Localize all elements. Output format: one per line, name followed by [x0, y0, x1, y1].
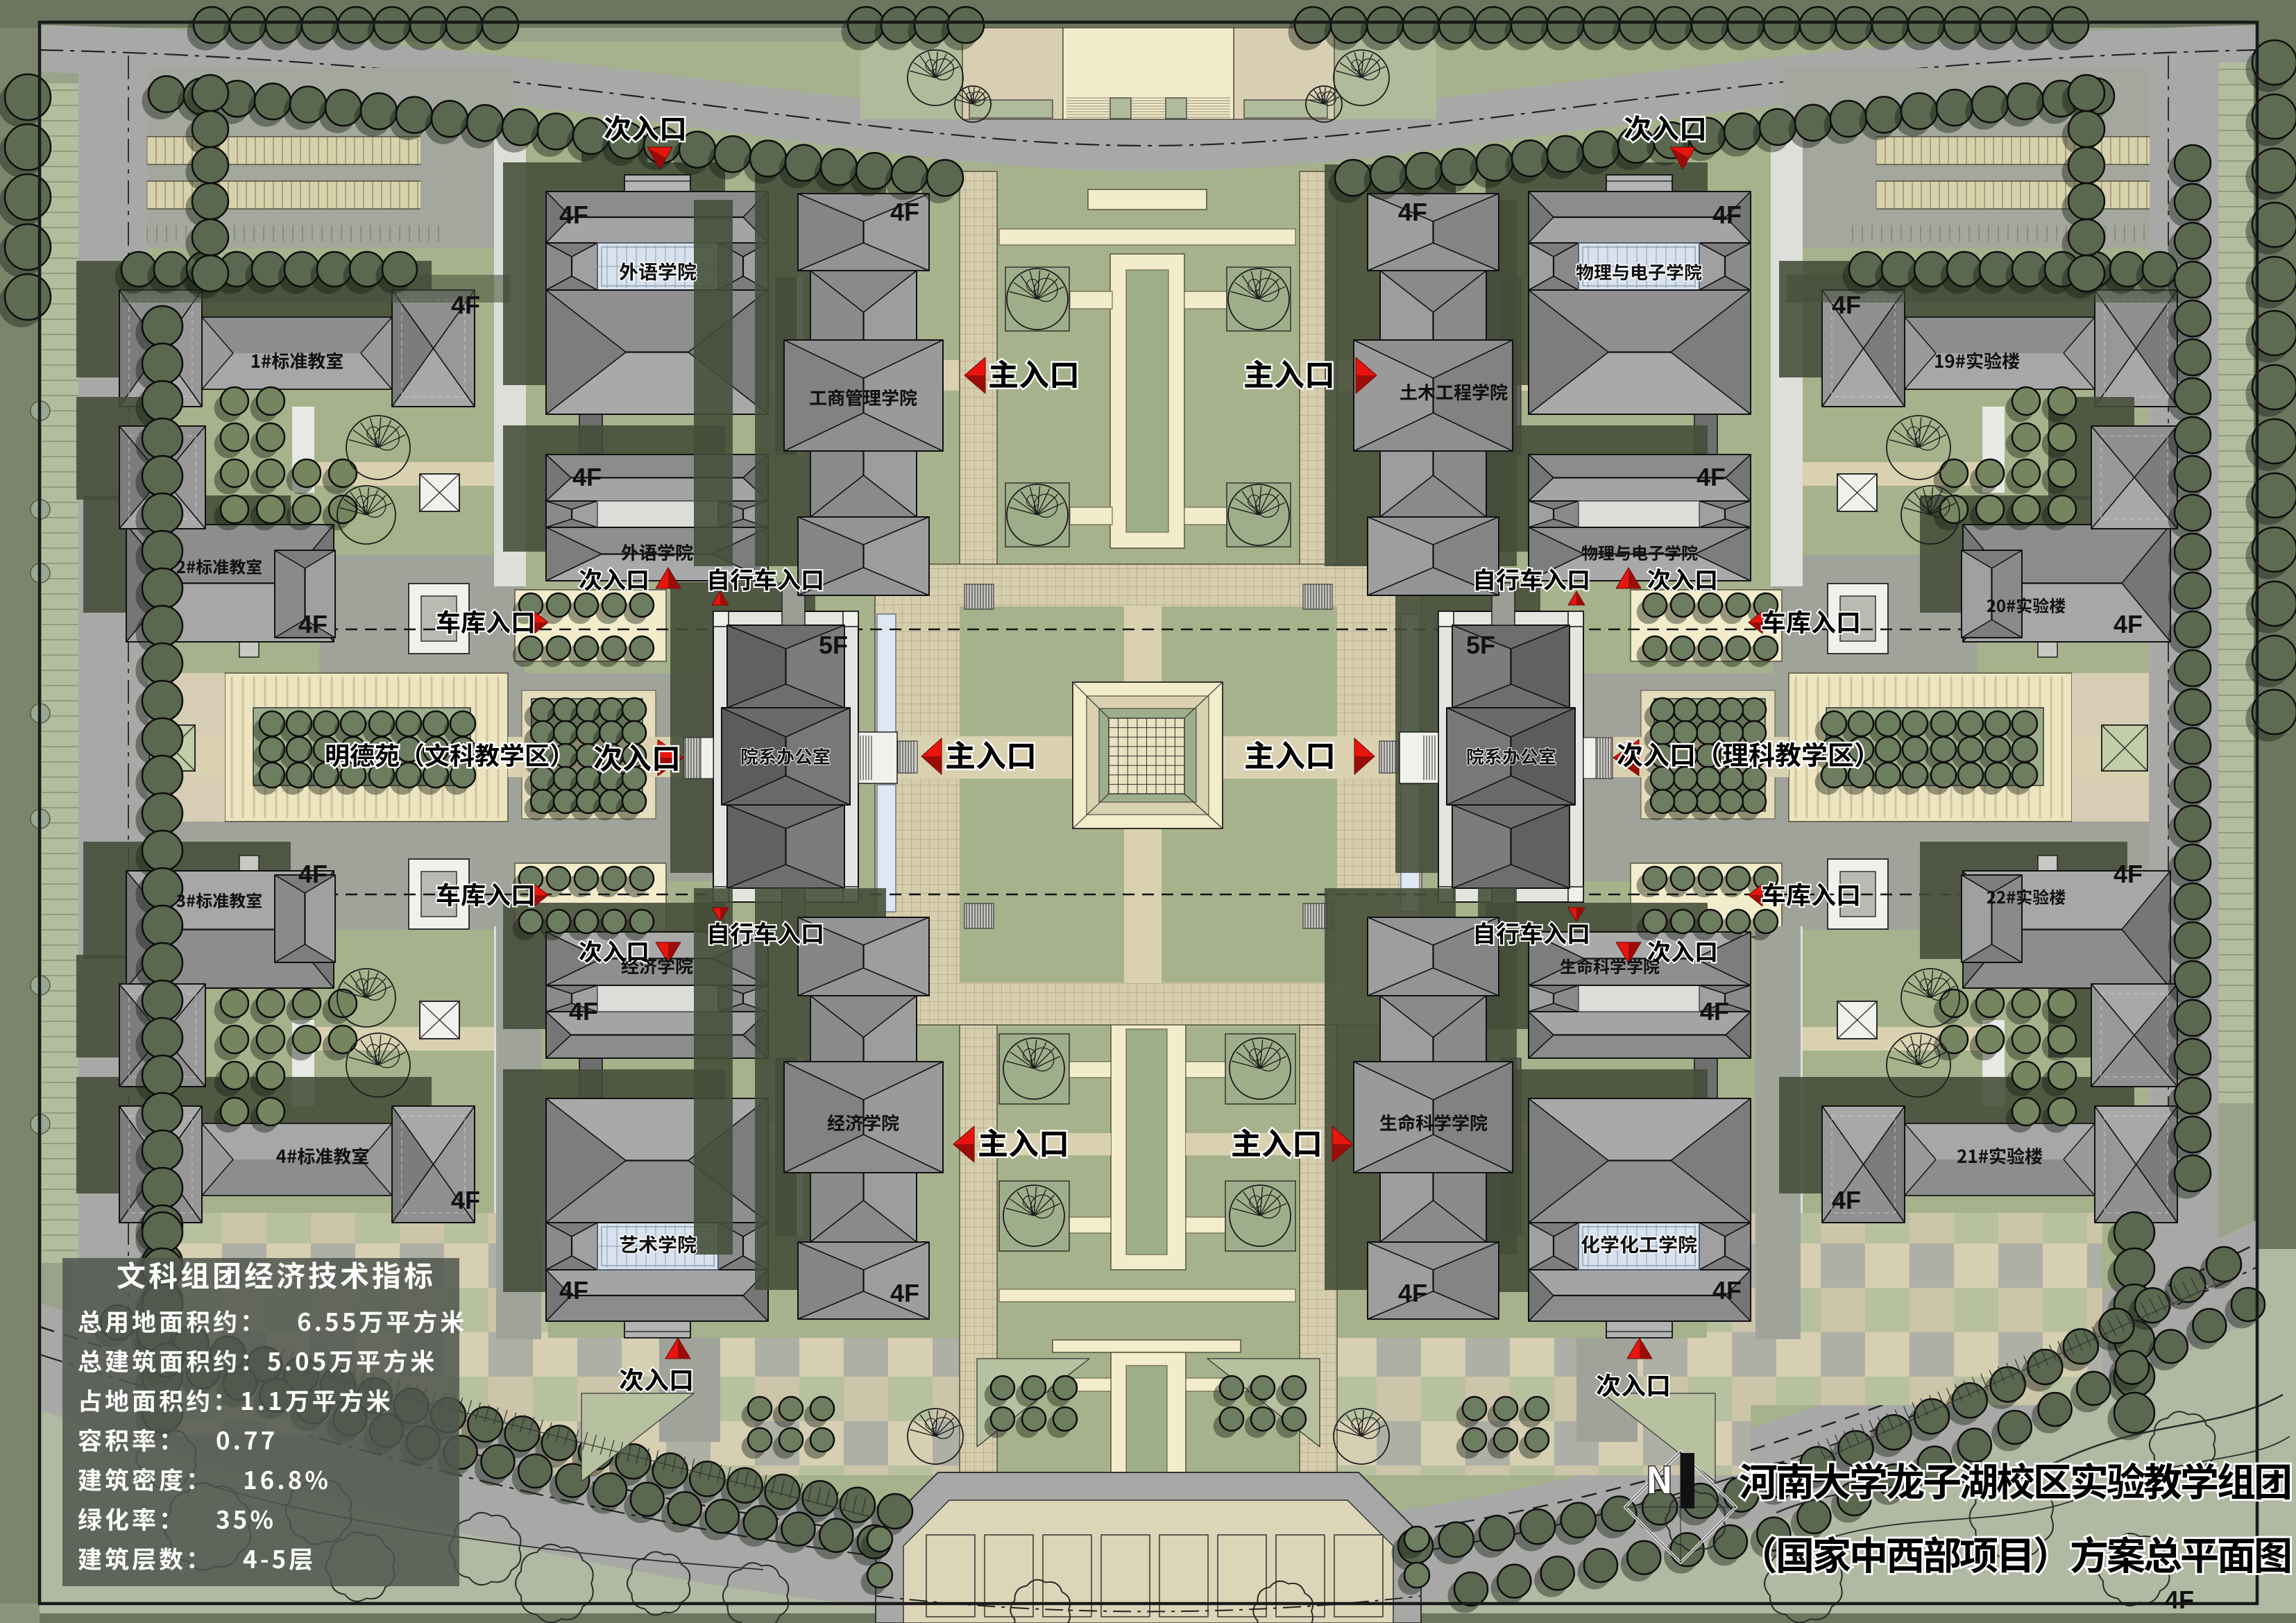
svg-text:4F: 4F: [1697, 463, 1726, 491]
svg-text:4F: 4F: [569, 997, 598, 1026]
svg-text:5F: 5F: [819, 631, 848, 659]
svg-text:4F: 4F: [1712, 1276, 1742, 1305]
svg-text:4F: 4F: [890, 198, 919, 226]
svg-text:4F: 4F: [2165, 1586, 2194, 1614]
svg-text:4F: 4F: [1398, 1279, 1427, 1307]
svg-text:4F: 4F: [559, 201, 588, 229]
svg-text:4F: 4F: [1700, 997, 1729, 1026]
svg-text:4F: 4F: [298, 860, 328, 888]
svg-text:4F: 4F: [2114, 610, 2143, 638]
svg-text:4F: 4F: [451, 1186, 480, 1214]
svg-text:4F: 4F: [451, 291, 480, 319]
svg-text:4F: 4F: [1832, 291, 1861, 319]
svg-text:4F: 4F: [1712, 201, 1742, 229]
svg-text:4F: 4F: [559, 1276, 588, 1305]
svg-text:4F: 4F: [1832, 1186, 1861, 1214]
svg-text:4F: 4F: [298, 610, 328, 638]
svg-text:5F: 5F: [1466, 631, 1495, 659]
svg-text:4F: 4F: [1398, 198, 1427, 226]
svg-text:4F: 4F: [890, 1279, 919, 1307]
svg-text:4F: 4F: [572, 463, 602, 491]
svg-text:4F: 4F: [2114, 860, 2143, 888]
